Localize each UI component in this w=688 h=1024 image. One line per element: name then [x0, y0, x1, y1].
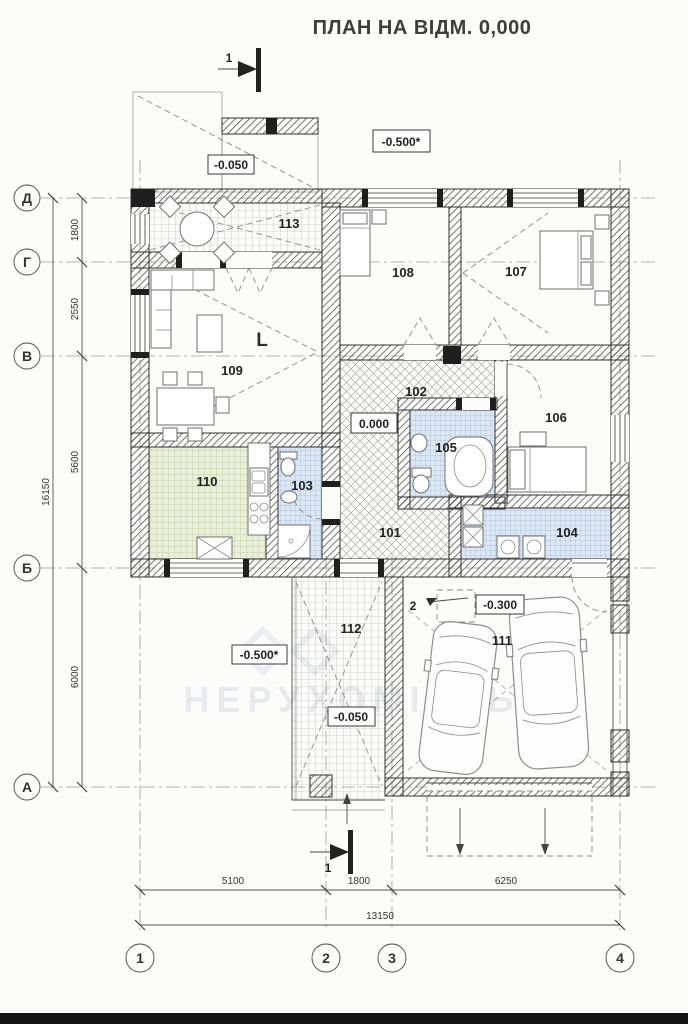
room-label-113: 113 — [279, 216, 300, 231]
detail-label: 2 — [410, 599, 417, 613]
floor-plan-page: БГ НЕРУХОМІСТЬ ПЛАН НА ВІДМ. 0,000 — [0, 0, 688, 1024]
svg-text:0.000: 0.000 — [359, 417, 389, 431]
elevation-porch: -0.050 — [328, 707, 375, 726]
elevation-hall: 0.000 — [351, 413, 397, 433]
elevation-terrace: -0.050 — [208, 155, 254, 174]
footer-bar — [0, 1013, 688, 1024]
window-107 — [507, 189, 584, 207]
window-terrace — [131, 214, 149, 244]
room-label-106: 106 — [545, 410, 567, 425]
coffee-table — [197, 315, 222, 352]
chimney-block — [443, 346, 461, 364]
axis-col-3: 4 — [616, 950, 624, 966]
page-title: ПЛАН НА ВІДМ. 0,000 — [313, 17, 532, 39]
room-label-110: 110 — [197, 474, 218, 489]
dim-bottom-1: 1800 — [348, 876, 371, 887]
axis-row-0: Д — [22, 190, 32, 206]
room-label-102: 102 — [405, 384, 427, 399]
axis-row-4: А — [22, 779, 32, 795]
section-bottom-label: 1 — [325, 861, 332, 875]
dim-bottom-total: 13150 — [366, 911, 394, 922]
axis-col-1: 2 — [322, 950, 330, 966]
dim-left-total: 16150 — [41, 478, 52, 506]
window-108 — [362, 189, 443, 207]
column-letter: L — [256, 330, 268, 351]
dim-left-3: 6000 — [70, 665, 81, 688]
room-label-104: 104 — [556, 525, 578, 540]
svg-text:-0.300: -0.300 — [483, 598, 517, 612]
section-top-label: 1 — [226, 51, 233, 65]
axis-col-2: 3 — [388, 950, 396, 966]
axis-row-2: В — [22, 348, 32, 364]
window-110 — [164, 559, 249, 577]
window-109 — [131, 289, 149, 358]
elevation-garage: -0.300 — [476, 595, 524, 614]
floor-plan-canvas: БГ НЕРУХОМІСТЬ ПЛАН НА ВІДМ. 0,000 — [0, 0, 688, 1024]
svg-text:-0.500*: -0.500* — [382, 135, 421, 149]
room-label-111: 111 — [492, 633, 512, 648]
dim-left-2: 5600 — [70, 450, 81, 473]
elevation-ground-porch: -0.500* — [232, 645, 287, 664]
room-label-108: 108 — [392, 265, 414, 280]
dim-bottom-2: 6250 — [495, 876, 518, 887]
axis-col-0: 1 — [136, 950, 144, 966]
dim-bottom-0: 5100 — [222, 876, 245, 887]
dim-left-1: 2550 — [70, 297, 81, 320]
svg-text:-0.500*: -0.500* — [240, 648, 279, 662]
axis-row-1: Г — [23, 254, 31, 270]
axis-row-3: Б — [22, 560, 32, 576]
room-label-105: 105 — [435, 440, 457, 455]
door-102-105 — [456, 398, 496, 410]
room-label-103: 103 — [291, 478, 313, 493]
svg-text:-0.050: -0.050 — [214, 158, 248, 172]
svg-text:-0.050: -0.050 — [334, 710, 368, 724]
dim-left-0: 1800 — [70, 218, 81, 241]
room-label-101: 101 — [379, 525, 401, 540]
room-label-112: 112 — [341, 621, 362, 636]
room-label-109: 109 — [221, 363, 243, 378]
room-label-107: 107 — [505, 264, 527, 279]
window-106 — [611, 415, 629, 462]
elevation-ground-top: -0.500* — [373, 130, 430, 152]
door-entrance-101 — [334, 559, 384, 577]
